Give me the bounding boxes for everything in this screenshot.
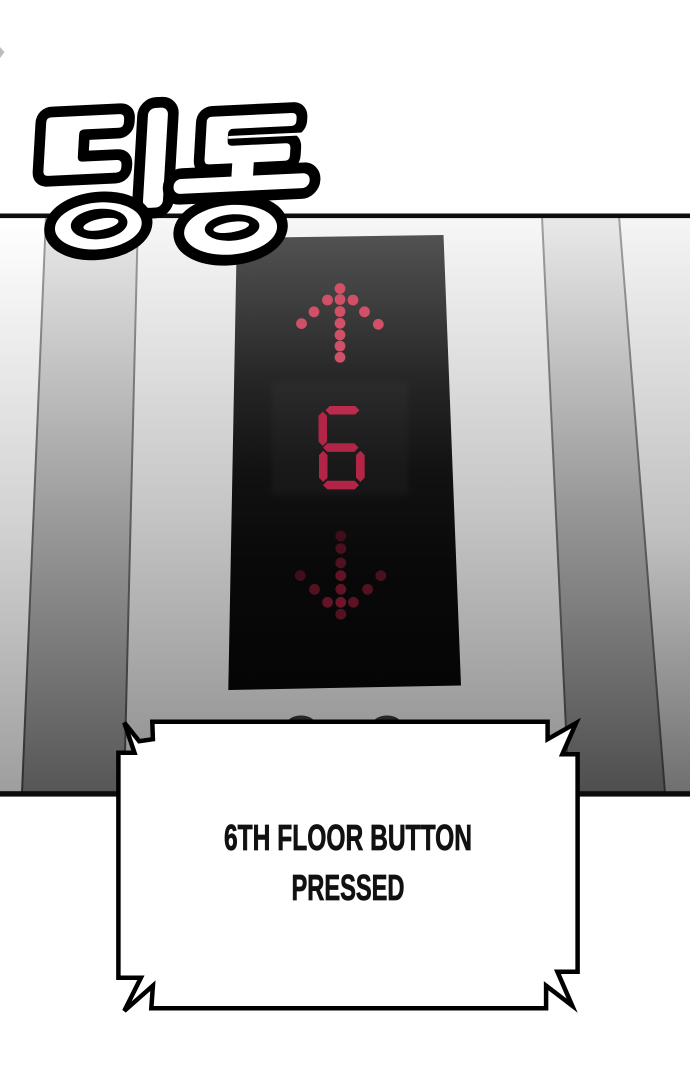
- svg-text:6TH FLOOR BUTTON: 6TH FLOOR BUTTON: [224, 817, 472, 858]
- svg-text:PRESSED: PRESSED: [292, 867, 405, 908]
